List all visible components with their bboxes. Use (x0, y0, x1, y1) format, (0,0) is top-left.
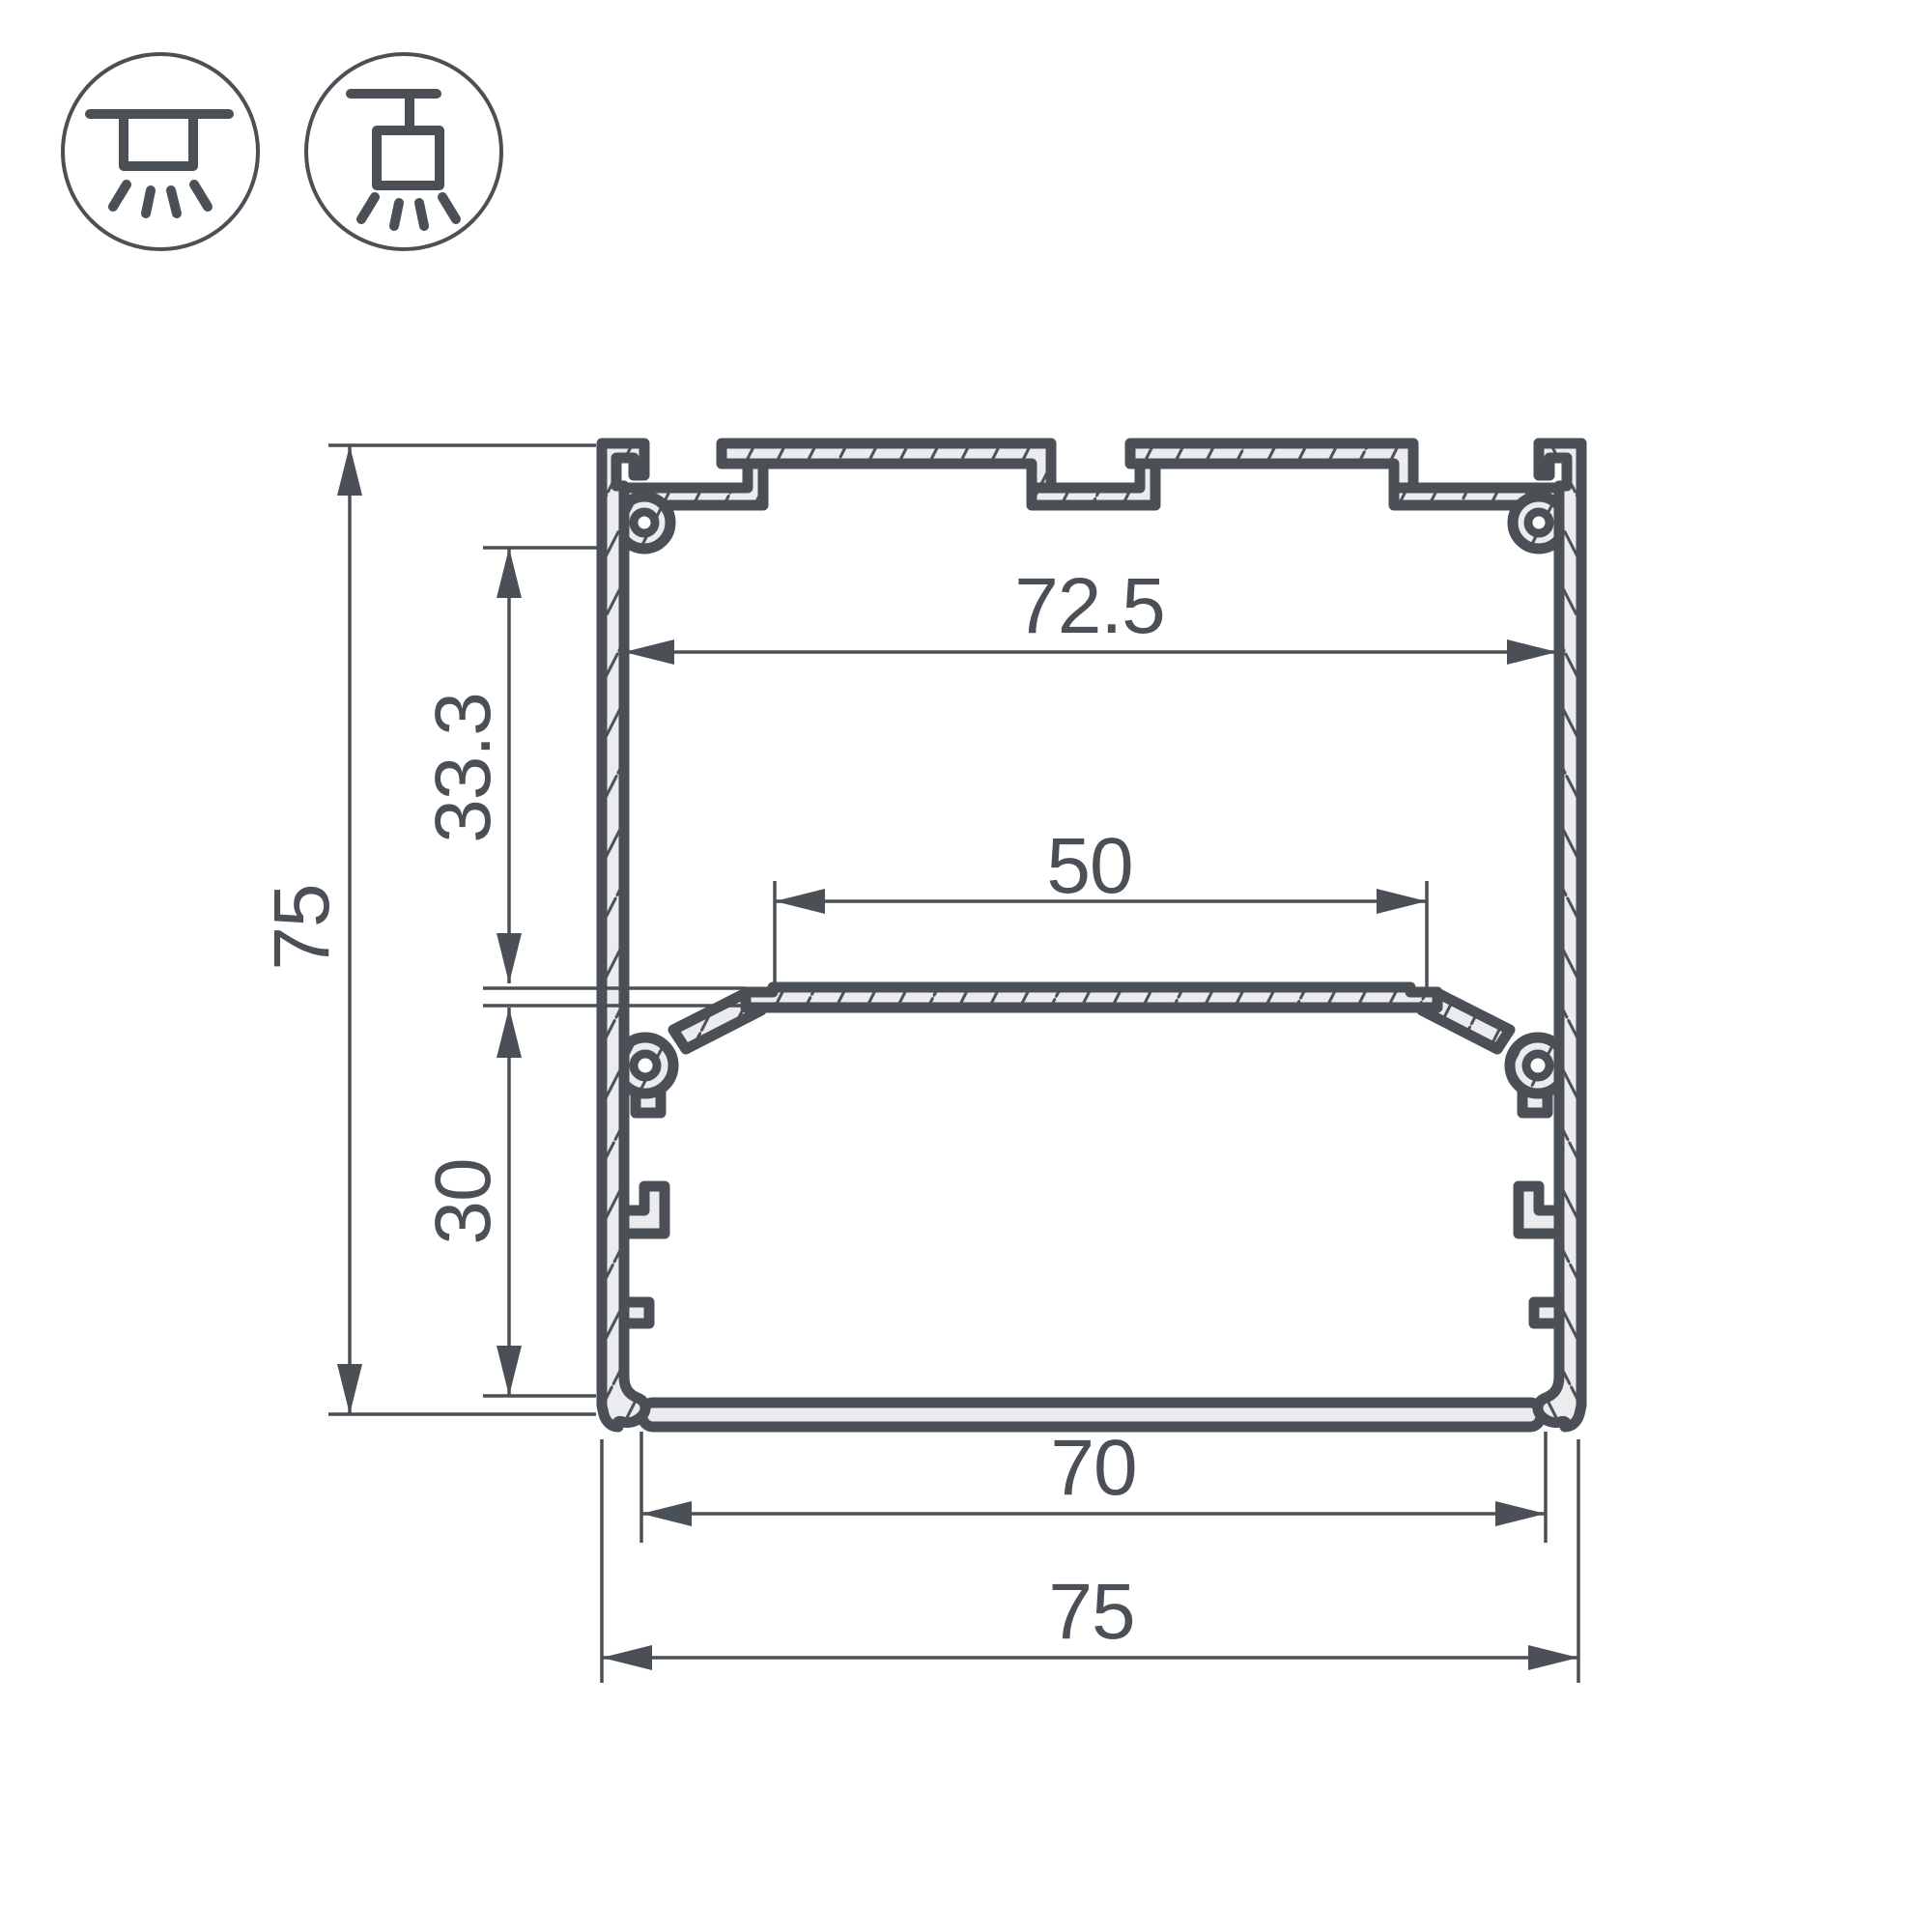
dim-label-overall-height: 75 (258, 884, 346, 970)
dim-label-bottom-inner-width: 70 (1050, 1424, 1136, 1512)
technical-drawing: 75 33.3 30 72.5 (0, 0, 1932, 1932)
dim-label-top-inner-width: 72.5 (1014, 562, 1165, 650)
drawing-page: 75 33.3 30 72.5 (0, 0, 1932, 1932)
dim-label-shelf-width: 50 (1046, 822, 1132, 910)
dim-label-lower-depth: 30 (419, 1158, 507, 1244)
pendant-mount-icon (306, 54, 501, 249)
icon-circle (306, 54, 501, 249)
dim-label-upper-depth: 33.3 (419, 693, 507, 843)
shelf-plate (746, 987, 1437, 1008)
dim-label-overall-width: 75 (1048, 1568, 1134, 1656)
icon-circle (63, 54, 258, 249)
surface-mount-icon (63, 54, 258, 249)
